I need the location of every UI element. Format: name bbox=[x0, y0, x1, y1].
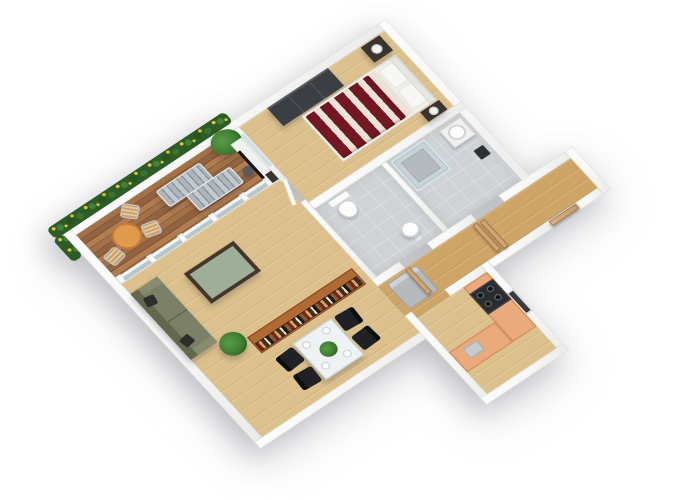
stove-burner bbox=[493, 293, 504, 302]
sofa-seat-seam bbox=[167, 309, 187, 323]
isometric-scene bbox=[0, 0, 700, 500]
stove-burner bbox=[475, 291, 486, 300]
apartment-plan bbox=[62, 0, 687, 500]
stove-burner bbox=[483, 299, 494, 308]
stove-burner bbox=[485, 284, 496, 293]
table-lamp bbox=[369, 42, 385, 55]
bistro-chair bbox=[120, 203, 141, 220]
shower-base bbox=[401, 148, 441, 182]
table-lamp bbox=[427, 105, 441, 117]
floorplan-render bbox=[0, 0, 700, 500]
